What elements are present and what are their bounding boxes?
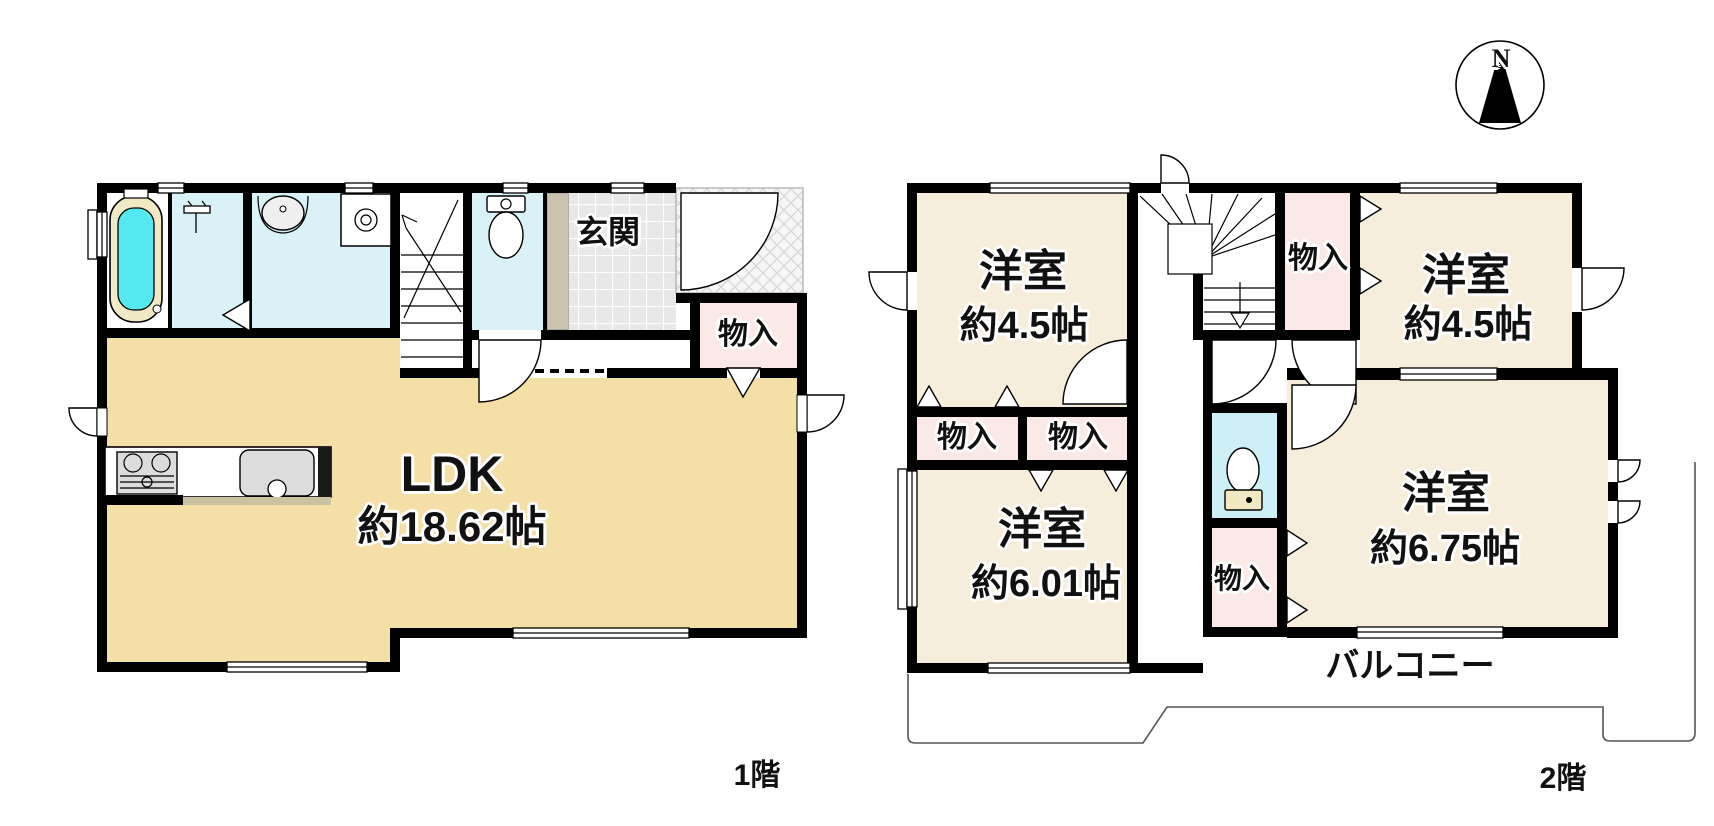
room-ne-size-label: 約4.5帖 bbox=[1404, 306, 1533, 344]
toilet-bowl-1f bbox=[489, 212, 523, 258]
stairwell-1f bbox=[400, 193, 463, 378]
washing-machine-icon bbox=[341, 194, 391, 246]
room-sw-label: 洋室 bbox=[998, 508, 1086, 552]
toilet-tank-2f bbox=[1225, 490, 1262, 510]
stairs-2f bbox=[1140, 194, 1284, 328]
toilet-bowl-2f bbox=[1227, 448, 1259, 492]
room-se-size-label: 約6.75帖 bbox=[1370, 530, 1520, 568]
room-ne-label: 洋室 bbox=[1422, 254, 1510, 298]
fixtures-2f bbox=[1225, 448, 1262, 510]
storage-2f-c-label: 物入 bbox=[1288, 244, 1348, 274]
bath-faucet-icon bbox=[124, 189, 148, 198]
hall-door-a bbox=[1212, 340, 1276, 404]
room-nw-label: 洋室 bbox=[979, 250, 1067, 294]
room-sw-size-label: 約6.01帖 bbox=[971, 565, 1121, 603]
sink-icon bbox=[262, 196, 304, 230]
storage-2f-b-label: 物入 bbox=[1048, 423, 1108, 453]
toilet-tank-1f bbox=[487, 196, 525, 212]
room-nw-size-label: 約4.5帖 bbox=[960, 307, 1089, 345]
genkan-label: 玄関 bbox=[576, 216, 640, 248]
room-6-75-balcony-door-1 bbox=[1618, 460, 1640, 482]
kitchen-service-door bbox=[69, 408, 97, 436]
stair-top-door bbox=[1161, 155, 1189, 183]
storage-1f-label: 物入 bbox=[718, 320, 778, 350]
floor2-caption: 2階 bbox=[1540, 764, 1587, 794]
balcony-label: バルコニー bbox=[1325, 649, 1494, 683]
genkan-step bbox=[547, 193, 569, 330]
floor-plan-drawing bbox=[0, 0, 1714, 826]
ldk-size-label: 約18.62帖 bbox=[357, 506, 546, 548]
floor1-caption: 1階 bbox=[734, 761, 781, 791]
compass-north-label: N bbox=[1492, 46, 1511, 72]
room-6-75-balcony-door-2 bbox=[1618, 501, 1640, 523]
storage-2f-d-label: 物入 bbox=[1214, 565, 1270, 593]
west-room-outer-door bbox=[869, 272, 907, 310]
bathtub-inner bbox=[118, 208, 154, 310]
floor-plan-page: N LDK 約18.62帖 玄関 物入 1階 洋室 約4.5帖 洋室 約4.5帖… bbox=[0, 0, 1714, 826]
ldk-label: LDK bbox=[401, 449, 504, 499]
floor1-plan bbox=[69, 183, 844, 672]
ldk-side-door bbox=[807, 395, 844, 432]
storage-2f-a-label: 物入 bbox=[937, 423, 997, 453]
room-se-label: 洋室 bbox=[1402, 472, 1490, 516]
east-room-outer-door bbox=[1582, 268, 1624, 310]
